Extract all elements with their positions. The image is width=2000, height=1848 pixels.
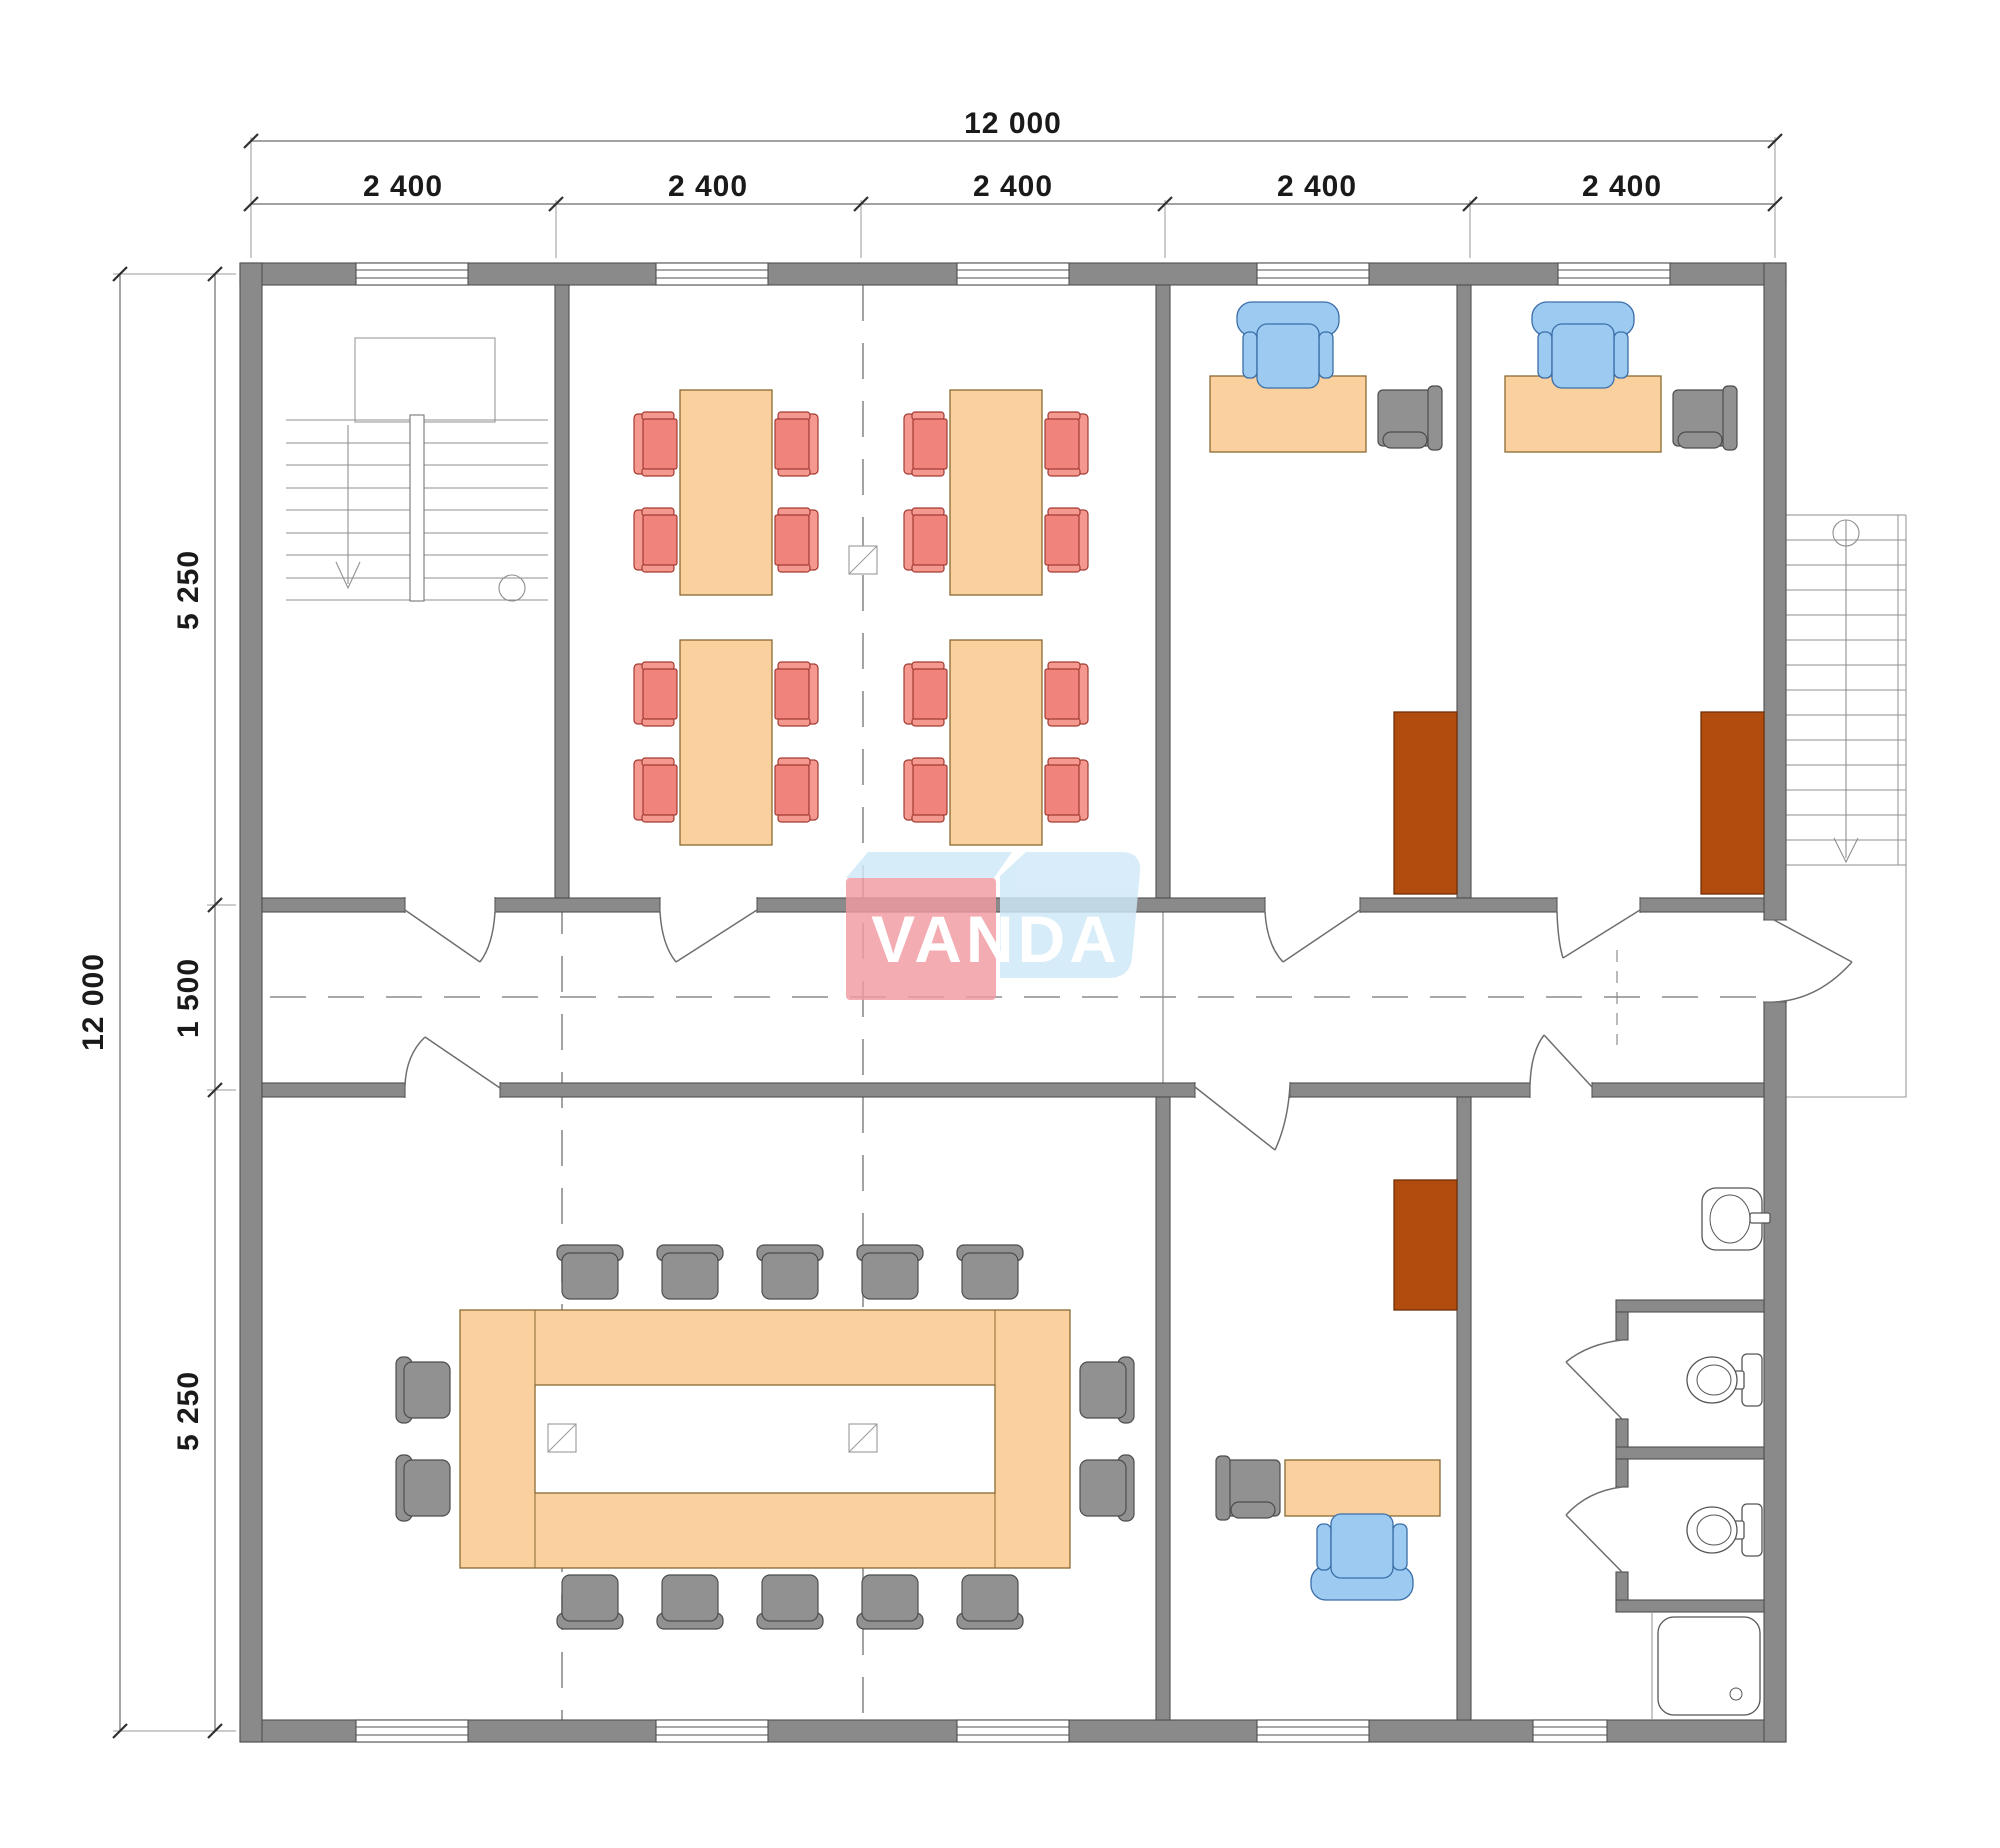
- dining-table: [950, 390, 1042, 595]
- exterior-stairs-icon: [1786, 515, 1906, 1097]
- conference-chair: [957, 1575, 1023, 1629]
- window-icon: [1257, 1720, 1369, 1742]
- partition-wall: [1156, 285, 1170, 898]
- window-icon: [656, 263, 768, 285]
- dim-left-seg: 5 250: [172, 1371, 205, 1451]
- dining-chair: [1045, 758, 1088, 822]
- toilet-stall-wall: [1616, 1572, 1628, 1600]
- logo-blue-top-face: [846, 852, 1012, 878]
- door-office-1: [1265, 910, 1360, 962]
- dim-top-seg: 2 400: [973, 170, 1053, 203]
- dining-chair: [904, 412, 947, 476]
- window-icon: [957, 263, 1069, 285]
- stair-direction-arrow: [336, 425, 360, 588]
- stair-start-marker: [499, 575, 525, 601]
- dining-chair: [775, 662, 818, 726]
- exterior-wall-left: [240, 263, 262, 1742]
- dim-top-seg: 2 400: [1277, 170, 1357, 203]
- conference-chair: [857, 1575, 923, 1629]
- dim-top-seg: 2 400: [1582, 170, 1662, 203]
- window-icon: [1533, 1720, 1607, 1742]
- conference-chair: [657, 1575, 723, 1629]
- dining-room-furniture: [634, 390, 1088, 845]
- logo-text: VANDA: [871, 902, 1121, 976]
- door-toilet-stall-2: [1566, 1487, 1622, 1572]
- conference-chair: [757, 1245, 823, 1299]
- dining-chair: [775, 412, 818, 476]
- toilet-stall-wall: [1616, 1300, 1764, 1312]
- conference-chair: [557, 1245, 623, 1299]
- toilet-stall-wall: [1616, 1600, 1764, 1612]
- dining-chair: [1045, 662, 1088, 726]
- office-chair: [1532, 302, 1634, 388]
- cabinet: [1701, 712, 1764, 894]
- dim-top-seg: 2 400: [363, 170, 443, 203]
- toilet-stall-wall: [1616, 1459, 1628, 1487]
- conference-chair: [757, 1575, 823, 1629]
- partition-wall: [555, 285, 569, 898]
- window-icon: [1558, 263, 1670, 285]
- partition-wall: [1457, 285, 1471, 898]
- dining-chair: [904, 508, 947, 572]
- toilet-stall-wall: [1616, 1447, 1764, 1459]
- office-chair: [1311, 1514, 1413, 1600]
- window-icon: [656, 1720, 768, 1742]
- toilet-icon: [1687, 1504, 1762, 1556]
- office-chair: [1237, 302, 1339, 388]
- office-1: [1210, 302, 1457, 894]
- toilet-stall-wall: [1616, 1312, 1628, 1340]
- conference-chair: [857, 1245, 923, 1299]
- dining-chair: [775, 758, 818, 822]
- dim-left-seg: 5 250: [172, 550, 205, 630]
- dining-chair: [1045, 508, 1088, 572]
- office-2: [1505, 302, 1764, 894]
- dining-chair: [1045, 412, 1088, 476]
- guest-chair: [1378, 386, 1442, 450]
- column-marker: [849, 546, 877, 574]
- dining-chair: [634, 508, 677, 572]
- conference-chair: [1080, 1357, 1134, 1423]
- sink-icon: [1702, 1188, 1770, 1250]
- desk: [1285, 1460, 1440, 1516]
- conference-chair: [557, 1575, 623, 1629]
- door-conference-room: [405, 1037, 500, 1088]
- toilet-icon: [1687, 1354, 1762, 1406]
- dining-table: [680, 390, 772, 595]
- cabinet: [1394, 712, 1457, 894]
- vanda-logo: VANDA: [846, 852, 1140, 1000]
- dining-chair: [775, 508, 818, 572]
- guest-chair: [1216, 1456, 1280, 1520]
- door-toilet-stall-1: [1566, 1340, 1622, 1419]
- conference-chair: [1080, 1455, 1134, 1521]
- partition-wall: [1156, 1097, 1170, 1720]
- window-icon: [356, 1720, 468, 1742]
- guest-chair: [1673, 386, 1737, 450]
- door-office-2: [1557, 910, 1640, 958]
- floor-plan-page: 12 000 2 400 2 400 2 400 2 400 2 400 12 …: [0, 0, 2000, 1848]
- window-icon: [957, 1720, 1069, 1742]
- conference-table-opening: [535, 1385, 995, 1493]
- dining-chair: [904, 662, 947, 726]
- stair-direction-arrow: [1834, 520, 1858, 862]
- toilet-stall-wall: [1616, 1419, 1628, 1447]
- dining-chair: [904, 758, 947, 822]
- conference-chair: [396, 1357, 450, 1423]
- conference-chair: [657, 1245, 723, 1299]
- dining-chair: [634, 758, 677, 822]
- door-dining-room: [660, 910, 757, 962]
- dim-left-seg: 1 500: [172, 958, 205, 1038]
- interior-stairs-icon: [286, 338, 548, 601]
- floor-plan-drawing: 12 000 2 400 2 400 2 400 2 400 2 400 12 …: [0, 0, 2000, 1848]
- conference-room-furniture: [396, 1245, 1134, 1629]
- partition-wall: [1457, 1097, 1471, 1720]
- office-3: [1216, 1180, 1457, 1600]
- door-stairwell: [405, 910, 495, 962]
- dining-table: [680, 640, 772, 845]
- dining-table: [950, 640, 1042, 845]
- door-restroom: [1530, 1035, 1592, 1087]
- dim-left-total: 12 000: [77, 953, 110, 1051]
- dining-chair: [634, 662, 677, 726]
- conference-chair: [396, 1455, 450, 1521]
- dim-top-seg: 2 400: [668, 170, 748, 203]
- dim-top-total: 12 000: [964, 107, 1062, 140]
- conference-chair: [957, 1245, 1023, 1299]
- dining-chair: [634, 412, 677, 476]
- cabinet: [1394, 1180, 1457, 1310]
- window-icon: [356, 263, 468, 285]
- window-icon: [1257, 263, 1369, 285]
- shower-icon: [1658, 1617, 1760, 1715]
